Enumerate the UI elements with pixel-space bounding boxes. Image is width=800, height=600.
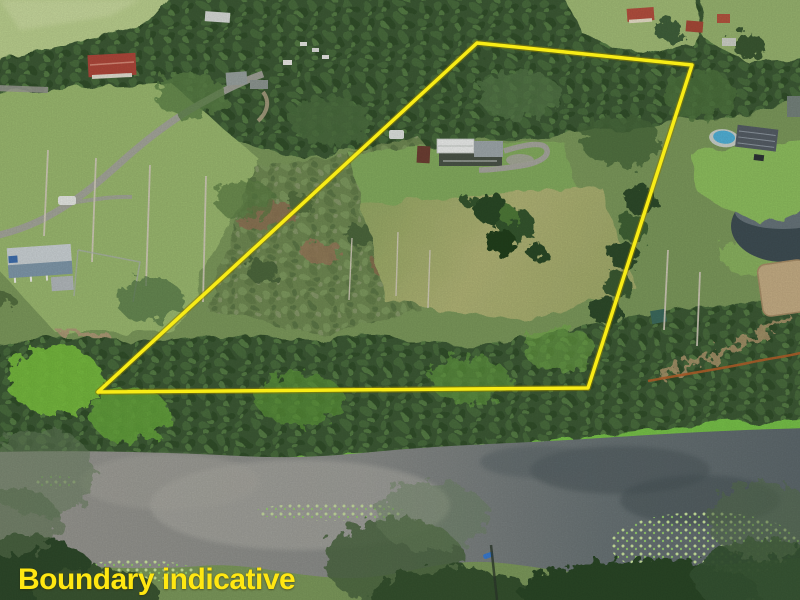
aerial-photo-canvas — [0, 0, 800, 600]
photo-grain — [0, 0, 800, 600]
boundary-caption: Boundary indicative — [18, 565, 295, 595]
aerial-photo: Boundary indicative — [0, 0, 800, 600]
